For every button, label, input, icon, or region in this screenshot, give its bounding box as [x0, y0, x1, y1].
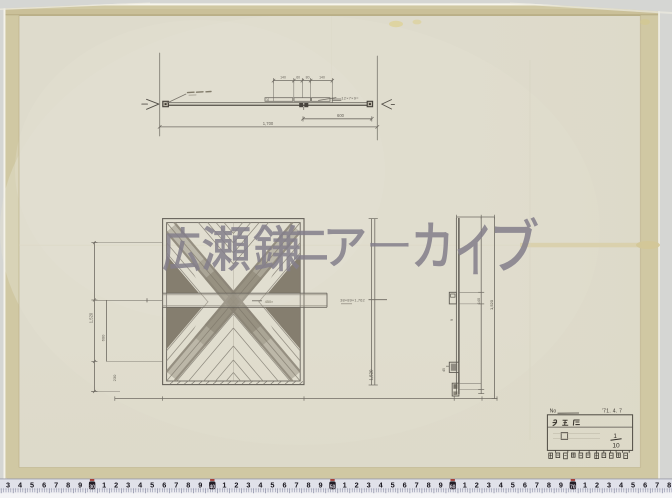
svg-text:6: 6	[162, 481, 166, 490]
svg-text:9: 9	[318, 481, 322, 490]
svg-text:140: 140	[319, 76, 325, 80]
svg-text:7: 7	[294, 481, 298, 490]
svg-text:45: 45	[442, 368, 446, 372]
svg-text:230: 230	[112, 374, 117, 381]
svg-text:3: 3	[367, 481, 371, 490]
svg-text:1: 1	[102, 481, 106, 490]
svg-text:80: 80	[306, 76, 310, 80]
svg-text:140: 140	[280, 76, 286, 80]
svg-text:1: 1	[222, 481, 226, 490]
svg-text:9: 9	[439, 481, 443, 490]
svg-text:3: 3	[487, 481, 491, 490]
svg-text:7: 7	[415, 481, 419, 490]
svg-text:6: 6	[523, 481, 527, 490]
svg-text:8: 8	[427, 481, 431, 490]
svg-text:5: 5	[511, 481, 515, 490]
svg-text:8: 8	[186, 481, 190, 490]
svg-text:38×89×1,762: 38×89×1,762	[340, 298, 365, 303]
svg-text:6: 6	[643, 481, 647, 490]
svg-text:No: No	[550, 409, 557, 415]
svg-text:2: 2	[595, 481, 599, 490]
svg-text:30: 30	[89, 485, 95, 491]
svg-text:60: 60	[266, 98, 270, 102]
svg-text:450×: 450×	[265, 300, 274, 304]
svg-text:1,700: 1,700	[263, 121, 274, 126]
svg-text:’71. 4. 7: ’71. 4. 7	[602, 409, 623, 415]
svg-text:12×7×9=: 12×7×9=	[341, 95, 359, 100]
svg-text:7: 7	[655, 481, 659, 490]
svg-text:7: 7	[174, 481, 178, 490]
svg-text:8: 8	[667, 481, 671, 490]
svg-text:3: 3	[6, 481, 10, 490]
svg-text:8: 8	[66, 481, 70, 490]
svg-text:600: 600	[337, 113, 345, 118]
svg-text:3: 3	[607, 481, 611, 490]
svg-text:9: 9	[198, 481, 202, 490]
svg-text:5: 5	[30, 481, 34, 490]
svg-text:5: 5	[391, 481, 395, 490]
svg-text:7: 7	[54, 481, 58, 490]
svg-text:6: 6	[403, 481, 407, 490]
svg-text:140: 140	[477, 298, 481, 304]
svg-text:5: 5	[270, 481, 274, 490]
svg-text:9: 9	[78, 481, 82, 490]
svg-text:1: 1	[463, 481, 467, 490]
svg-text:1: 1	[343, 481, 347, 490]
svg-text:7: 7	[535, 481, 539, 490]
svg-text:6: 6	[282, 481, 286, 490]
svg-text:9: 9	[450, 319, 454, 321]
svg-text:50: 50	[330, 485, 336, 491]
svg-text:1,520: 1,520	[89, 312, 94, 323]
svg-text:2: 2	[355, 481, 359, 490]
svg-text:2: 2	[475, 481, 479, 490]
svg-text:1,520: 1,520	[369, 369, 374, 381]
svg-text:1,520: 1,520	[489, 299, 494, 310]
svg-text:2: 2	[114, 481, 118, 490]
svg-text:40: 40	[210, 485, 216, 491]
svg-text:3: 3	[246, 481, 250, 490]
svg-text:70: 70	[570, 485, 576, 491]
svg-text:3: 3	[126, 481, 130, 490]
svg-text:8: 8	[547, 481, 551, 490]
svg-text:60: 60	[450, 485, 456, 491]
svg-text:5: 5	[150, 481, 154, 490]
svg-text:5: 5	[631, 481, 635, 490]
svg-text:600: 600	[101, 334, 106, 341]
svg-text:1: 1	[583, 481, 587, 490]
svg-text:60: 60	[296, 76, 300, 80]
svg-text:6: 6	[42, 481, 46, 490]
svg-text:2: 2	[234, 481, 238, 490]
svg-text:10: 10	[612, 443, 620, 450]
svg-text:9: 9	[559, 481, 563, 490]
svg-text:8: 8	[306, 481, 310, 490]
